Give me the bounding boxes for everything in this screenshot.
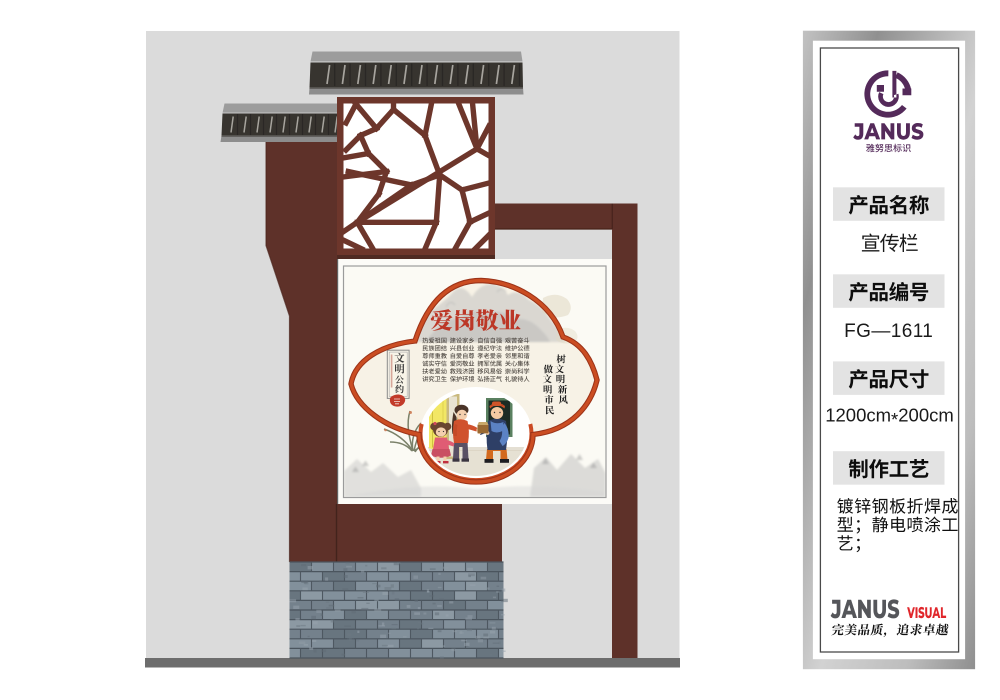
svg-text:FG—1611: FG—1611 [844,321,933,342]
